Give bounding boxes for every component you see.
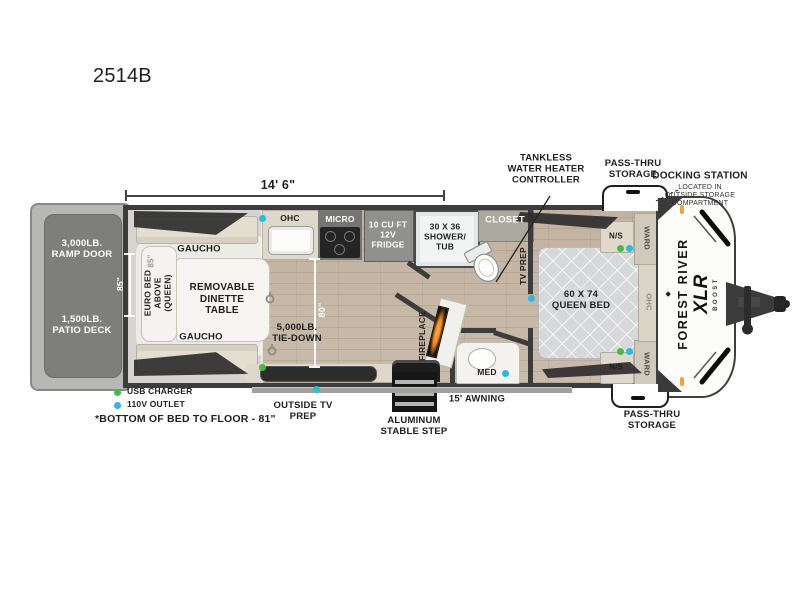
awning-label: 15' AWNING xyxy=(449,395,505,406)
shower-label: 30 X 36 SHOWER/ TUB xyxy=(424,222,466,251)
brand-sub-logo: BOOST xyxy=(713,277,719,311)
floorplan-canvas: 2514B 14' 6" 3,000LB. RAMP DOOR 1,500LB.… xyxy=(0,0,800,600)
pass-thru-bottom-label: PASS-THRU STORAGE xyxy=(624,410,681,432)
bed-overhead-cabinet-label: OHC xyxy=(644,293,653,310)
ramp-door-label: 3,000LB. RAMP DOOR xyxy=(52,239,113,261)
awning-rail xyxy=(252,387,572,393)
step-label: ALUMINUM STABLE STEP xyxy=(381,416,448,438)
model-number: 2514B xyxy=(93,65,152,88)
wardrobe-bottom-label: WARD xyxy=(642,352,651,376)
outlet-dot xyxy=(259,215,266,222)
burner-icon xyxy=(344,231,355,242)
burner-icon xyxy=(325,231,336,242)
step-tread xyxy=(395,402,434,406)
garage-dimension-tick-top xyxy=(309,258,320,260)
pass-thru-bottom-latch-icon xyxy=(631,396,645,400)
garage-dimension-line xyxy=(314,258,316,368)
docking-station-note: LOCATED IN OUTSIDE STORAGE COMPARTMENT xyxy=(665,184,735,208)
med-label: MED xyxy=(477,368,497,378)
outlet-dot xyxy=(313,386,320,393)
outlet-dot xyxy=(626,245,633,252)
euro-bed-label: EURO BED ABOVE (QUEEN) xyxy=(143,270,172,316)
tie-down-label: 5,000LB. TIE-DOWN xyxy=(272,323,322,345)
kitchen-ohc-label: OHC xyxy=(280,214,300,224)
nightstand-bottom-label: N/S xyxy=(609,362,623,371)
length-dimension-tick-left xyxy=(125,190,127,201)
burner-icon xyxy=(334,244,345,255)
docking-station-label: DOCKING STATION xyxy=(652,170,747,182)
fireplace-label: FIREPLACE xyxy=(418,311,428,361)
tankless-label: TANKLESS WATER HEATER CONTROLLER xyxy=(508,154,585,187)
step-tread xyxy=(395,380,434,384)
outside-tv-panel xyxy=(260,366,377,382)
patio-deck-label: 1,500LB. PATIO DECK xyxy=(52,315,111,337)
bed-height-note: *BOTTOM OF BED TO FLOOR - 81" xyxy=(95,413,276,425)
width-dimension-tick-bottom xyxy=(124,315,135,317)
outlet-dot xyxy=(502,370,509,377)
outlet-dot xyxy=(626,348,633,355)
outlet-dot xyxy=(528,295,535,302)
usb-dot xyxy=(259,364,266,371)
legend-usb-dot xyxy=(114,389,121,396)
garage-dimension-label: 80" xyxy=(317,303,327,318)
queen-bed-label: 60 X 74 QUEEN BED xyxy=(552,290,610,312)
length-dimension-line xyxy=(125,195,445,197)
usb-dot xyxy=(617,348,624,355)
bedroom-wall-bottom xyxy=(528,328,533,383)
usb-dot xyxy=(617,245,624,252)
width-dimension-label: 85" xyxy=(116,277,126,291)
garage-dimension-tick-bottom xyxy=(309,366,320,368)
legend-outlet-label: 110V OUTLET xyxy=(127,400,185,410)
microwave-label: MICRO xyxy=(325,215,354,225)
closet-label: CLOSET xyxy=(485,216,525,227)
gaucho-bottom-label: GAUCHO xyxy=(179,333,222,344)
pass-thru-top-latch-icon xyxy=(626,190,640,194)
width-dimension-line xyxy=(129,253,131,317)
outside-tv-label: OUTSIDE TV PREP xyxy=(273,401,332,423)
kitchen-sink xyxy=(268,226,314,255)
length-dimension-label: 14' 6" xyxy=(261,178,295,192)
width-dimension-tick-top xyxy=(124,253,135,255)
refrigerator-label: 10 CU FT 12V FRIDGE xyxy=(369,220,407,249)
bed-width-label: 85" xyxy=(146,254,155,267)
nightstand-top-label: N/S xyxy=(609,231,623,240)
tv-prep-label: TV PREP xyxy=(519,247,529,285)
brand-name: FOREST RIVER xyxy=(676,238,690,350)
marker-light-icon xyxy=(680,377,684,386)
brand-emblem-icon: ◆ xyxy=(665,291,672,296)
brand-model-logo: XLR xyxy=(694,274,709,314)
legend-outlet-dot xyxy=(114,402,121,409)
length-dimension-tick-right xyxy=(443,190,445,201)
pass-thru-storage-top xyxy=(602,185,668,211)
legend-usb-label: USB CHARGER xyxy=(127,387,192,397)
dinette-label: REMOVABLE DINETTE TABLE xyxy=(190,282,255,317)
gaucho-top-label: GAUCHO xyxy=(177,245,220,256)
brand-logo-group: ◆ FOREST RIVER XLR BOOST xyxy=(665,238,719,350)
wardrobe-top-label: WARD xyxy=(642,226,651,250)
